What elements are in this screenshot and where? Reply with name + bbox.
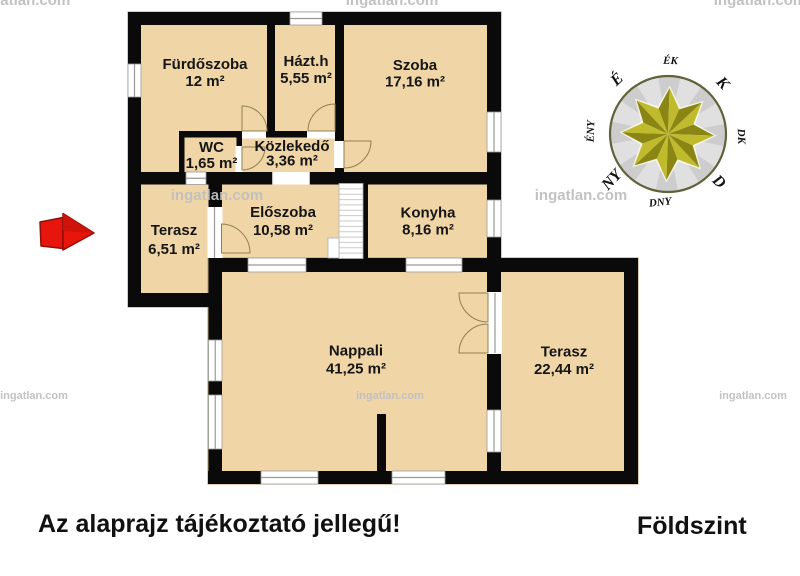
svg-text:Az alaprajz tájékoztató jelleg: Az alaprajz tájékoztató jellegű!	[38, 510, 401, 538]
svg-text:ingatlan.com: ingatlan.com	[356, 390, 424, 402]
svg-text:ingatlan.com: ingatlan.com	[0, 0, 70, 9]
svg-text:Szoba: Szoba	[393, 57, 438, 74]
svg-text:1,65 m²: 1,65 m²	[186, 155, 238, 172]
svg-text:Nappali: Nappali	[329, 343, 383, 360]
svg-text:ÉNY: ÉNY	[585, 119, 598, 144]
svg-text:Konyha: Konyha	[400, 205, 456, 222]
svg-text:DK: DK	[735, 127, 748, 144]
svg-text:ingatlan.com: ingatlan.com	[171, 187, 264, 204]
svg-text:Fürdőszoba: Fürdőszoba	[163, 56, 249, 73]
svg-text:ingatlan.com: ingatlan.com	[714, 0, 800, 9]
svg-text:6,51 m²: 6,51 m²	[148, 241, 200, 258]
svg-text:22,44 m²: 22,44 m²	[534, 361, 594, 378]
svg-text:ingatlan.com: ingatlan.com	[346, 0, 439, 9]
svg-text:Házt.h: Házt.h	[284, 53, 329, 70]
svg-text:12 m²: 12 m²	[185, 73, 224, 90]
svg-text:41,25 m²: 41,25 m²	[326, 361, 386, 378]
svg-text:ingatlan.com: ingatlan.com	[0, 390, 68, 402]
svg-text:WC: WC	[199, 139, 224, 156]
svg-text:Terasz: Terasz	[541, 344, 587, 361]
svg-text:ingatlan.com: ingatlan.com	[719, 390, 787, 402]
svg-text:ÉK: ÉK	[662, 55, 679, 68]
svg-text:Terasz: Terasz	[151, 222, 197, 239]
svg-text:Előszoba: Előszoba	[250, 204, 317, 221]
svg-text:8,16 m²: 8,16 m²	[402, 222, 454, 239]
svg-text:17,16 m²: 17,16 m²	[385, 74, 445, 91]
svg-text:5,55 m²: 5,55 m²	[280, 70, 332, 87]
svg-text:Földszint: Földszint	[637, 512, 747, 540]
svg-text:3,36 m²: 3,36 m²	[266, 152, 318, 169]
svg-text:10,58 m²: 10,58 m²	[253, 222, 313, 239]
